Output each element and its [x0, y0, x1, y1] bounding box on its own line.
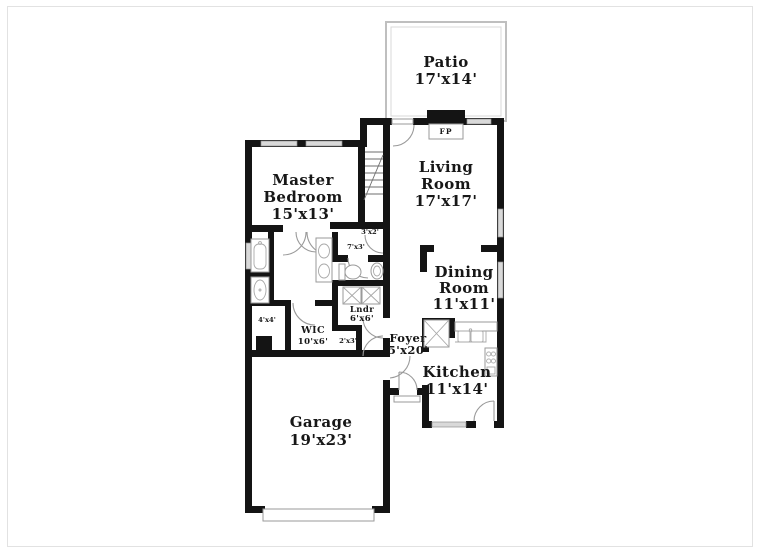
master-window-left — [261, 141, 297, 146]
patio-door-threshold — [392, 119, 413, 124]
master-door-arc-left — [283, 232, 306, 255]
wic-label: WIC — [300, 325, 325, 336]
master-bedroom-label-2: Bedroom — [263, 188, 342, 206]
floor-plan-image: Patio 17'x14' Living Room 17'x17' Master… — [0, 0, 760, 553]
linen-dims: 4'x4' — [258, 316, 276, 324]
bathtub — [251, 239, 269, 272]
kitchen-label: Kitchen — [423, 363, 492, 381]
bath-window — [246, 243, 251, 269]
wic-dims: 10'x6' — [298, 337, 328, 347]
washer-dryer — [343, 287, 380, 304]
garage-entry-door-arc — [390, 356, 410, 378]
garage-door — [263, 509, 374, 521]
kitchen-dims: 11'x14' — [426, 380, 489, 398]
kitchen-window — [432, 422, 466, 427]
fireplace-label: FP — [440, 127, 453, 136]
foyer-dims: 5'x20' — [388, 343, 428, 357]
dining-window-right — [498, 262, 503, 298]
powder-sink — [371, 263, 383, 279]
patio-label: Patio — [423, 53, 468, 71]
living-room-label-2: Room — [421, 175, 471, 193]
coat-closet-dims: 2'x3' — [339, 337, 357, 345]
structural-post — [256, 336, 272, 352]
staircase — [364, 152, 383, 200]
living-room-label-1: Living — [419, 158, 474, 176]
laundry-dims: 6'x6' — [350, 314, 374, 324]
kitchen-back-door-arc — [474, 401, 494, 421]
living-window-right — [498, 209, 503, 237]
front-door-arc — [399, 372, 417, 390]
toilet — [339, 264, 361, 280]
dining-room-dims: 11'x11' — [433, 295, 496, 313]
patio-door-arc — [393, 125, 414, 146]
garage-label: Garage — [290, 413, 353, 431]
stair-closet-dims: 3'x2' — [361, 228, 379, 236]
wic-door-arc — [293, 303, 315, 325]
master-bedroom-label-1: Master — [272, 171, 334, 189]
master-bedroom-dims: 15'x13' — [272, 205, 335, 223]
living-room-dims: 17'x17' — [415, 192, 478, 210]
kitchen-counter-sink — [455, 322, 497, 342]
floor-plan-drawing: Patio 17'x14' Living Room 17'x17' Master… — [0, 0, 760, 553]
hall-dims: 7'x3' — [347, 243, 365, 251]
vanity-sinks — [316, 238, 332, 282]
patio-dims: 17'x14' — [415, 70, 478, 88]
master-window-right — [306, 141, 342, 146]
front-door-threshold — [394, 396, 420, 402]
shower — [251, 277, 269, 303]
garage-dims: 19'x23' — [290, 431, 353, 449]
stair-closet-door-arc — [365, 235, 383, 253]
living-window-top — [467, 119, 491, 124]
